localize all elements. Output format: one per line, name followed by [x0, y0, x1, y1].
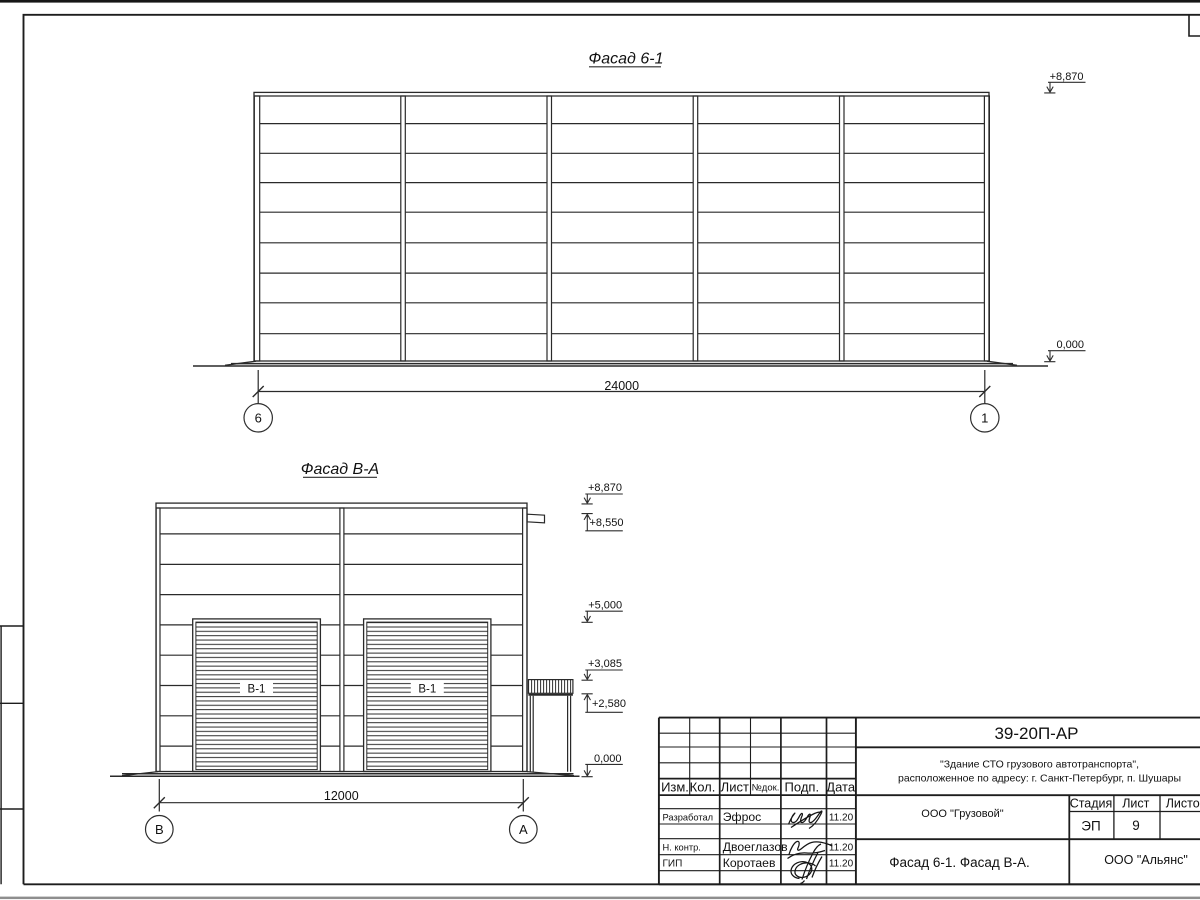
- svg-text:Н. контр.: Н. контр.: [663, 842, 701, 852]
- svg-text:Двоеглазов: Двоеглазов: [723, 840, 788, 854]
- svg-text:В-1: В-1: [418, 684, 436, 696]
- svg-text:+3,085: +3,085: [588, 658, 622, 670]
- svg-text:Листов: Листов: [1166, 796, 1200, 810]
- svg-text:39-20П-АР: 39-20П-АР: [994, 724, 1078, 743]
- svg-text:В: В: [155, 822, 164, 837]
- svg-text:Стадия: Стадия: [1070, 796, 1113, 810]
- svg-text:6: 6: [255, 410, 262, 425]
- svg-text:1: 1: [981, 410, 988, 425]
- svg-text:11.20: 11.20: [829, 859, 854, 870]
- svg-text:24000: 24000: [604, 379, 639, 393]
- svg-text:Фасад 6-1: Фасад 6-1: [589, 51, 664, 68]
- svg-text:12000: 12000: [324, 789, 359, 803]
- svg-text:ООО "Грузовой": ООО "Грузовой": [921, 808, 1003, 820]
- svg-text:Дата: Дата: [826, 779, 856, 794]
- svg-text:11.20: 11.20: [829, 813, 854, 824]
- svg-text:Лист: Лист: [1122, 796, 1149, 810]
- svg-text:+8,870: +8,870: [1050, 71, 1084, 83]
- svg-text:А: А: [519, 822, 528, 837]
- svg-text:ЭП: ЭП: [1081, 818, 1100, 833]
- svg-text:Эфрос: Эфрос: [723, 810, 761, 824]
- svg-text:Разработал: Разработал: [663, 812, 714, 822]
- svg-text:+5,000: +5,000: [588, 599, 622, 611]
- svg-text:Фасад 6-1. Фасад В-А.: Фасад 6-1. Фасад В-А.: [889, 855, 1030, 870]
- svg-text:Лист: Лист: [721, 779, 749, 794]
- svg-text:Изм.: Изм.: [661, 779, 689, 794]
- svg-text:+8,870: +8,870: [588, 482, 622, 494]
- svg-text:0,000: 0,000: [1057, 339, 1085, 351]
- svg-text:Фасад В-А: Фасад В-А: [301, 461, 379, 478]
- svg-text:расположенное по адресу: г. Са: расположенное по адресу: г. Санкт-Петерб…: [898, 773, 1181, 785]
- svg-text:9: 9: [1132, 818, 1140, 833]
- svg-text:+8,550: +8,550: [590, 517, 624, 529]
- svg-text:ГИП: ГИП: [663, 858, 683, 869]
- svg-text:+2,580: +2,580: [592, 698, 626, 710]
- svg-text:№док.: №док.: [752, 782, 780, 793]
- svg-text:Кол.: Кол.: [690, 779, 716, 794]
- svg-text:Подп.: Подп.: [785, 779, 820, 794]
- svg-text:0,000: 0,000: [594, 753, 622, 765]
- svg-text:ООО "Альянс": ООО "Альянс": [1104, 853, 1188, 867]
- svg-text:"Здание СТО грузового автотран: "Здание СТО грузового автотранспорта",: [940, 759, 1139, 771]
- svg-text:Коротаев: Коротаев: [723, 856, 776, 870]
- svg-text:В-1: В-1: [248, 684, 266, 696]
- svg-text:11.20: 11.20: [829, 843, 854, 854]
